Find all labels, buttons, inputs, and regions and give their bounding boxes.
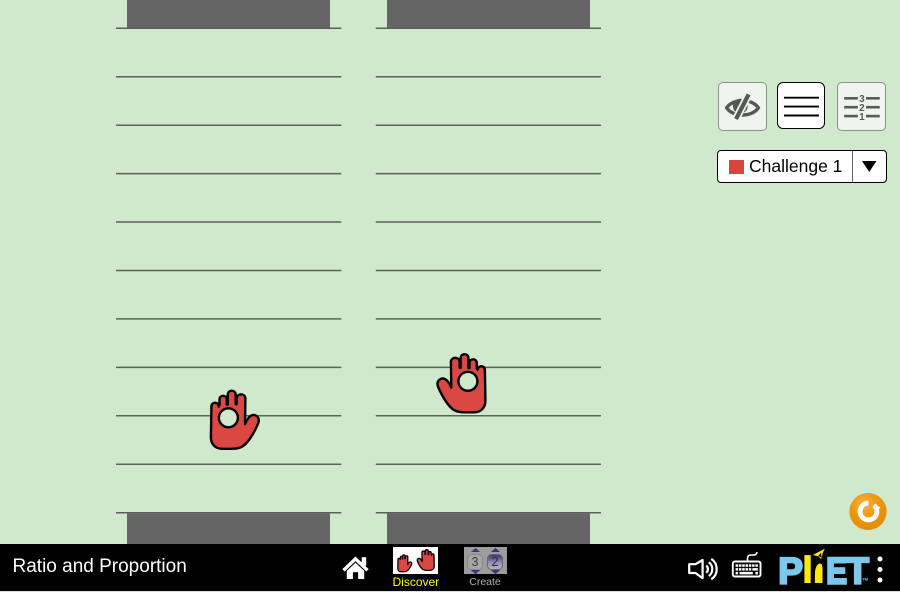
svg-text:™: ™	[862, 578, 869, 585]
svg-text:P: P	[778, 550, 803, 587]
svg-text:E: E	[826, 551, 847, 587]
svg-text:1: 1	[859, 112, 865, 123]
